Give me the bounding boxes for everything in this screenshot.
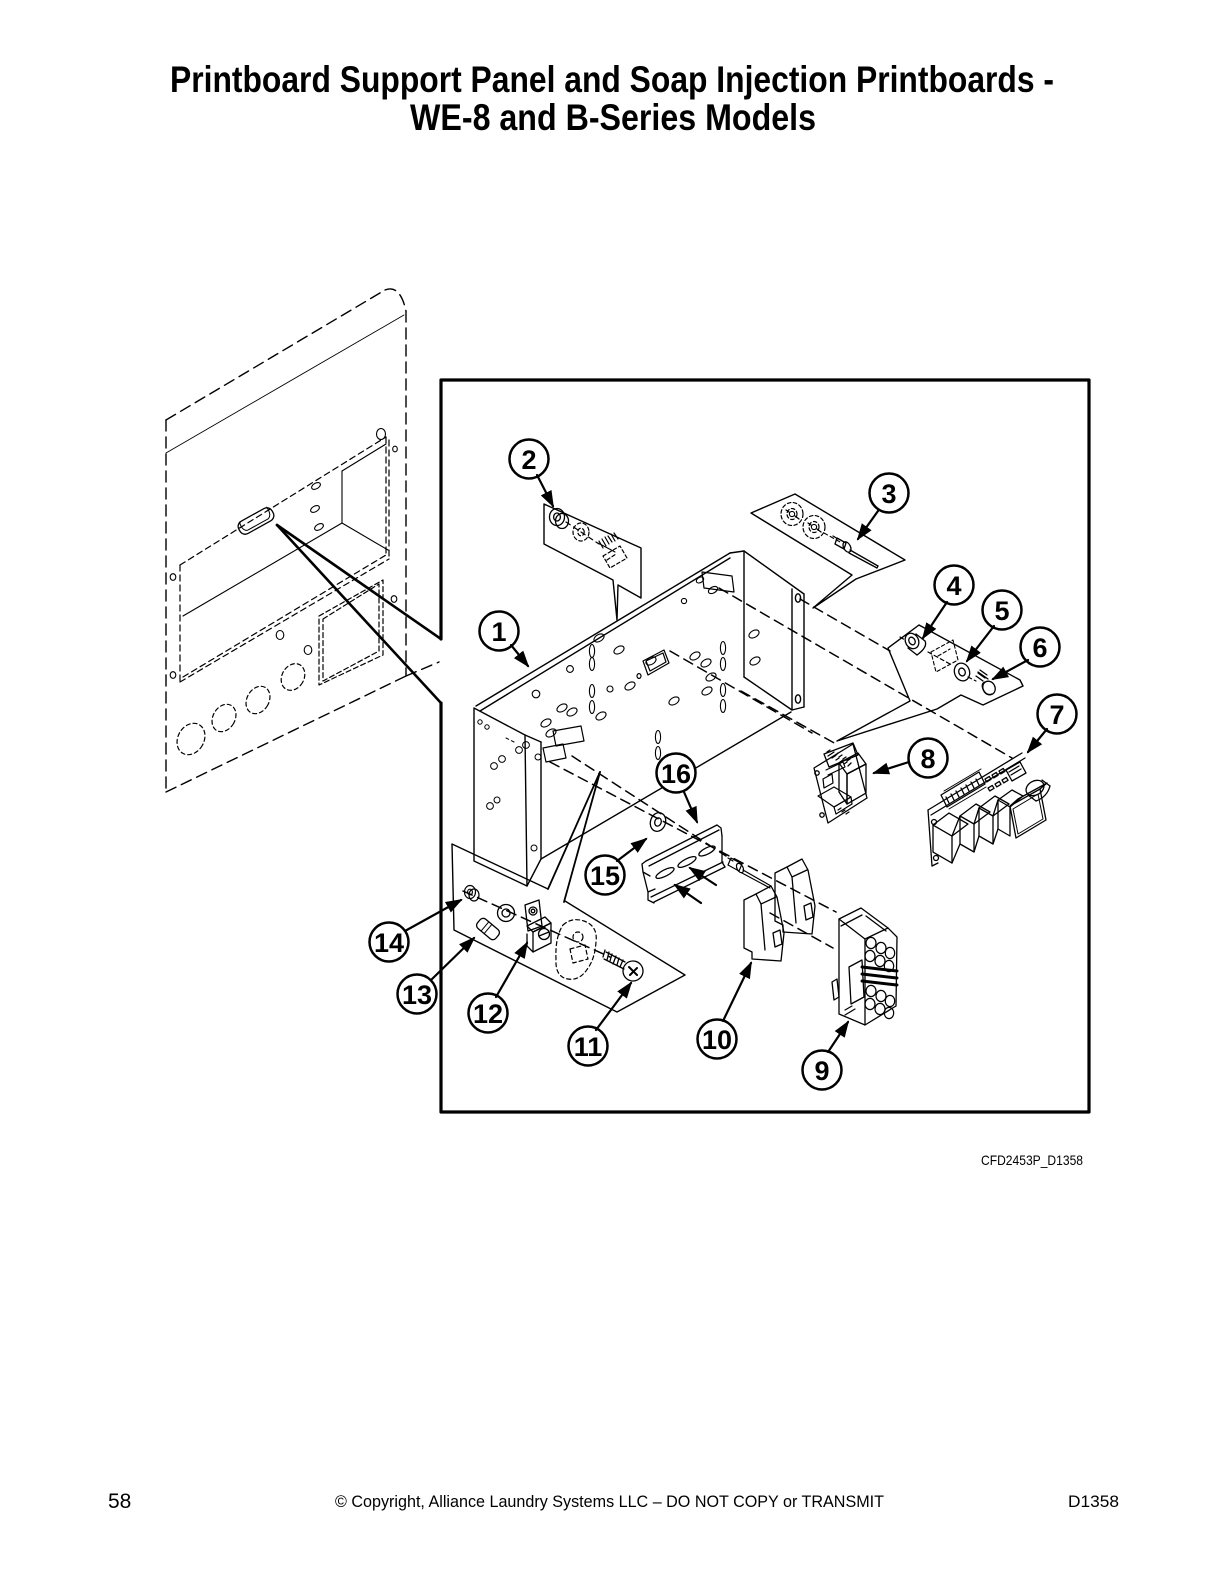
svg-text:2: 2: [521, 445, 536, 475]
svg-text:WE-8 and B-Series Models: WE-8 and B-Series Models: [410, 97, 816, 138]
svg-text:6: 6: [1032, 633, 1047, 663]
svg-text:13: 13: [402, 980, 432, 1010]
svg-text:4: 4: [946, 571, 961, 601]
svg-text:58: 58: [108, 1490, 131, 1513]
svg-text:8: 8: [920, 744, 935, 774]
svg-text:11: 11: [574, 1032, 603, 1062]
svg-text:10: 10: [702, 1025, 732, 1055]
svg-text:3: 3: [881, 479, 896, 509]
svg-text:CFD2453P_D1358: CFD2453P_D1358: [981, 1153, 1083, 1168]
svg-text:© Copyright, Alliance Laundry: © Copyright, Alliance Laundry Systems LL…: [335, 1492, 884, 1511]
svg-text:5: 5: [994, 596, 1009, 626]
svg-text:D1358: D1358: [1068, 1492, 1119, 1511]
svg-text:16: 16: [661, 759, 691, 789]
svg-text:7: 7: [1049, 700, 1064, 730]
svg-text:1: 1: [491, 617, 506, 647]
svg-text:15: 15: [590, 861, 620, 891]
svg-text:Printboard Support Panel and S: Printboard Support Panel and Soap Inject…: [170, 59, 1054, 100]
svg-text:9: 9: [814, 1056, 829, 1086]
svg-text:14: 14: [374, 928, 404, 958]
svg-text:12: 12: [473, 999, 503, 1029]
